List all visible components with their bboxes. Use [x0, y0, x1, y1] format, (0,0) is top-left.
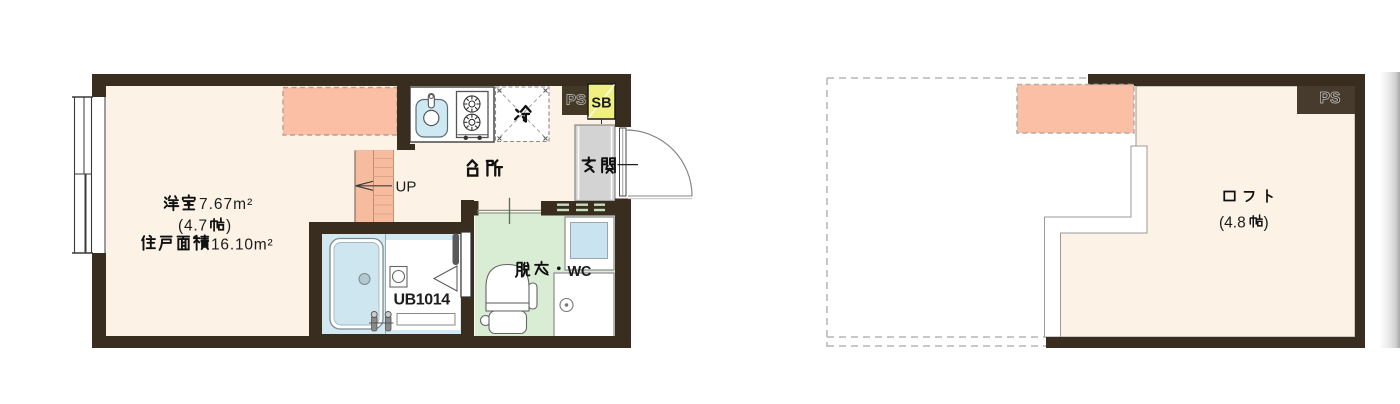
svg-text:): ) [1264, 215, 1269, 232]
svg-text:WC: WC [568, 264, 592, 280]
svg-text:): ) [226, 218, 231, 235]
svg-text:7.67m²: 7.67m² [199, 196, 253, 213]
svg-text:(4.8: (4.8 [1219, 215, 1246, 232]
svg-text:UB1014: UB1014 [394, 292, 451, 309]
svg-text:PS: PS [1320, 90, 1341, 107]
svg-text:16.10m²: 16.10m² [211, 237, 273, 254]
svg-text:PS: PS [566, 92, 586, 109]
svg-text:UP: UP [396, 179, 417, 196]
svg-text:(4.7: (4.7 [178, 218, 208, 235]
svg-text:SB: SB [591, 96, 611, 112]
